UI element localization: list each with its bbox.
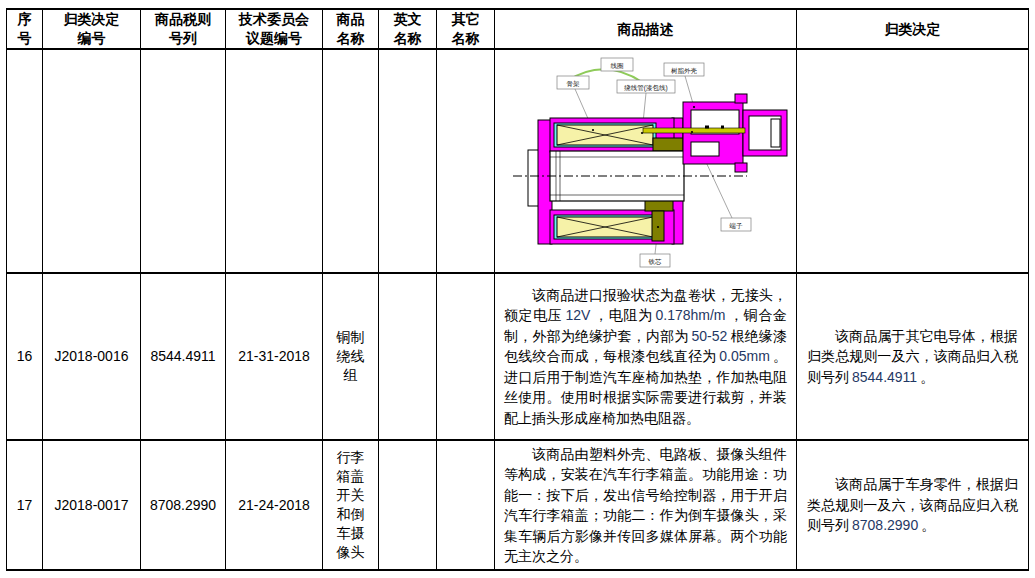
cell-product-name: 行李箱盖开关和倒车摄像头 xyxy=(323,440,379,570)
label-core: 铁芯 xyxy=(640,254,670,267)
col-header-decision: 归类决定 xyxy=(797,9,1029,49)
cell-product-name: 铜制绕线组 xyxy=(323,273,379,440)
classification-table: 序号 归类决定编号 商品税则号列 技术委员会议题编号 商品名称 英文名称 其它名… xyxy=(6,8,1029,571)
pin-tick xyxy=(705,126,709,129)
cell-empty xyxy=(43,49,141,273)
col-header-other-name: 其它名称 xyxy=(437,9,495,49)
cell-description: 该商品进口报验状态为盘卷状，无接头，额定电压12V，电阻为0.178hm/m，铜… xyxy=(495,273,797,440)
core-bottom-block xyxy=(645,200,673,211)
cell-empty xyxy=(226,49,323,273)
cell-empty xyxy=(797,49,1029,273)
solenoid-cross-section-diagram: 线圈 骨架 绕线管(漆包线) 树脂外壳 xyxy=(495,50,795,272)
terminal-pin xyxy=(643,128,745,133)
col-header-committee-no: 技术委员会议题编号 xyxy=(226,9,323,49)
cell-description: 该商品由塑料外壳、电路板、摄像头组件等构成，安装在汽车行李箱盖。功能用途：功能一… xyxy=(495,440,797,570)
decision-paragraph: 该商品属于车身零件，根据归类总规则一及六，该商品应归入税则号列8708.2990… xyxy=(807,474,1018,536)
cell-tariff-no: 8544.4911 xyxy=(141,273,226,440)
table-header-row: 序号 归类决定编号 商品税则号列 技术委员会议题编号 商品名称 英文名称 其它名… xyxy=(7,9,1029,49)
cell-decision: 该商品属于其它电导体，根据归类总规则一及六，该商品归入税则号列8544.4911… xyxy=(797,273,1029,440)
label-winding-wire-text: 绕线管(漆包线) xyxy=(624,84,667,92)
description-paragraph: 该商品由塑料外壳、电路板、摄像头组件等构成，安装在汽车行李箱盖。功能用途：功能一… xyxy=(504,444,787,567)
cell-english-name xyxy=(379,273,437,440)
label-bobbin-text: 骨架 xyxy=(567,80,581,87)
connector-notch xyxy=(691,142,719,156)
col-header-english-name: 英文名称 xyxy=(379,9,437,49)
label-coil-text: 线圈 xyxy=(611,62,624,70)
col-header-seq: 序号 xyxy=(7,9,43,49)
cell-english-name xyxy=(379,440,437,570)
cell-empty xyxy=(437,49,495,273)
table-row-17: 17 J2018-0017 8708.2990 21-24-2018 行李箱盖开… xyxy=(7,440,1029,570)
cell-product-diagram: 线圈 骨架 绕线管(漆包线) 树脂外壳 xyxy=(495,49,797,273)
cell-empty xyxy=(379,49,437,273)
cell-empty xyxy=(323,49,379,273)
socket-end xyxy=(771,119,780,147)
classification-decision-document: 序号 归类决定编号 商品税则号列 技术委员会议题编号 商品名称 英文名称 其它名… xyxy=(0,0,1035,578)
core-top-block xyxy=(653,138,683,151)
cell-seq: 17 xyxy=(7,440,43,570)
label-winding-wire: 绕线管(漆包线) xyxy=(617,80,675,93)
col-header-name: 商品名称 xyxy=(323,9,379,49)
cell-committee-no: 21-31-2018 xyxy=(226,273,323,440)
label-resin-shell-text: 树脂外壳 xyxy=(671,67,698,75)
pin-tick xyxy=(721,126,724,129)
table-row-diagram: 线圈 骨架 绕线管(漆包线) 树脂外壳 xyxy=(7,49,1029,273)
col-header-description: 商品描述 xyxy=(495,9,797,49)
label-resin-shell: 树脂外壳 xyxy=(664,63,704,76)
connector-top-tab xyxy=(735,94,747,103)
cell-other-name xyxy=(437,273,495,440)
cell-decision: 该商品属于车身零件，根据归类总规则一及六，该商品应归入税则号列8708.2990… xyxy=(797,440,1029,570)
label-terminal-text: 端子 xyxy=(729,222,744,230)
label-bobbin: 骨架 xyxy=(557,76,589,89)
table-row-16: 16 J2018-0016 8544.4911 21-31-2018 铜制绕线组… xyxy=(7,273,1029,440)
cell-decision-no: J2018-0017 xyxy=(43,440,141,570)
cell-tariff-no: 8708.2990 xyxy=(141,440,226,570)
description-paragraph: 该商品进口报验状态为盘卷状，无接头，额定电压12V，电阻为0.178hm/m，铜… xyxy=(504,285,787,429)
label-coil: 线圈 xyxy=(601,58,633,71)
cell-decision-no: J2018-0016 xyxy=(43,273,141,440)
cell-empty xyxy=(7,49,43,273)
decision-paragraph: 该商品属于其它电导体，根据归类总规则一及六，该商品归入税则号列8544.4911… xyxy=(807,326,1018,388)
cell-committee-no: 21-24-2018 xyxy=(226,440,323,570)
connector-bottom-tab xyxy=(735,163,747,172)
cell-empty xyxy=(141,49,226,273)
label-terminal: 端子 xyxy=(721,218,751,231)
cell-seq: 16 xyxy=(7,273,43,440)
col-header-decision-no: 归类决定编号 xyxy=(43,9,141,49)
cell-other-name xyxy=(437,440,495,570)
col-header-tariff-no: 商品税则号列 xyxy=(141,9,226,49)
label-core-text: 铁芯 xyxy=(648,258,663,265)
